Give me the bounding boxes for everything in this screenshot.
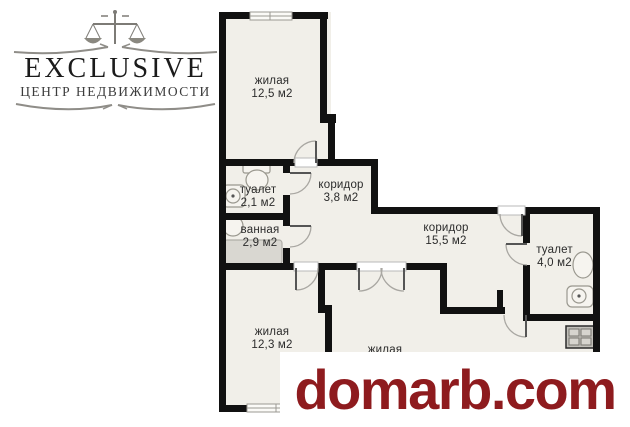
sink-icon-2 <box>567 286 593 307</box>
room-label-hall-small: коридор 3,8 м2 <box>296 179 386 204</box>
stove-icon <box>566 326 594 348</box>
room-area: 2,9 м2 <box>215 237 305 250</box>
room-name: коридор <box>296 179 386 192</box>
room-label-living-2: жилая 12,3 м2 <box>227 326 317 351</box>
room-name: жилая <box>227 75 317 88</box>
room-label-living-1: жилая 12,5 м2 <box>227 75 317 100</box>
room-name: туалет <box>512 244 597 257</box>
window-top <box>250 12 292 20</box>
room-name: ванная <box>215 224 305 237</box>
agency-logo: EXCLUSIVE ЦЕНТР НЕДВИЖИМОСТИ <box>8 0 223 122</box>
logo-tagline-text: ЦЕНТР НЕДВИЖИМОСТИ <box>8 84 223 100</box>
room-area: 15,5 м2 <box>401 235 491 248</box>
scales-icon <box>84 10 146 44</box>
listing-photo: жилая 12,5 м2 туалет 2,1 м2 коридор 3,8 … <box>0 0 630 427</box>
room-area: 2,1 м2 <box>213 197 303 210</box>
room-area: 4,0 м2 <box>512 257 597 270</box>
room-area: 3,8 м2 <box>296 192 386 205</box>
watermark-text: domarb.com <box>294 357 615 422</box>
watermark-banner: domarb.com <box>280 352 630 427</box>
room-name: жилая <box>227 326 317 339</box>
logo-flourish-top <box>14 44 217 53</box>
logo-brand-text: EXCLUSIVE <box>8 53 223 85</box>
room-name: туалет <box>213 184 303 197</box>
room-area: 12,5 м2 <box>227 88 317 101</box>
room-label-bathroom: ванная 2,9 м2 <box>215 224 305 249</box>
room-label-hall-big: коридор 15,5 м2 <box>401 222 491 247</box>
room-label-wc-2: туалет 4,0 м2 <box>512 244 597 269</box>
room-label-wc-1: туалет 2,1 м2 <box>213 184 303 209</box>
logo-flourish-bottom <box>16 104 215 109</box>
room-name: коридор <box>401 222 491 235</box>
room-area: 12,3 м2 <box>227 339 317 352</box>
